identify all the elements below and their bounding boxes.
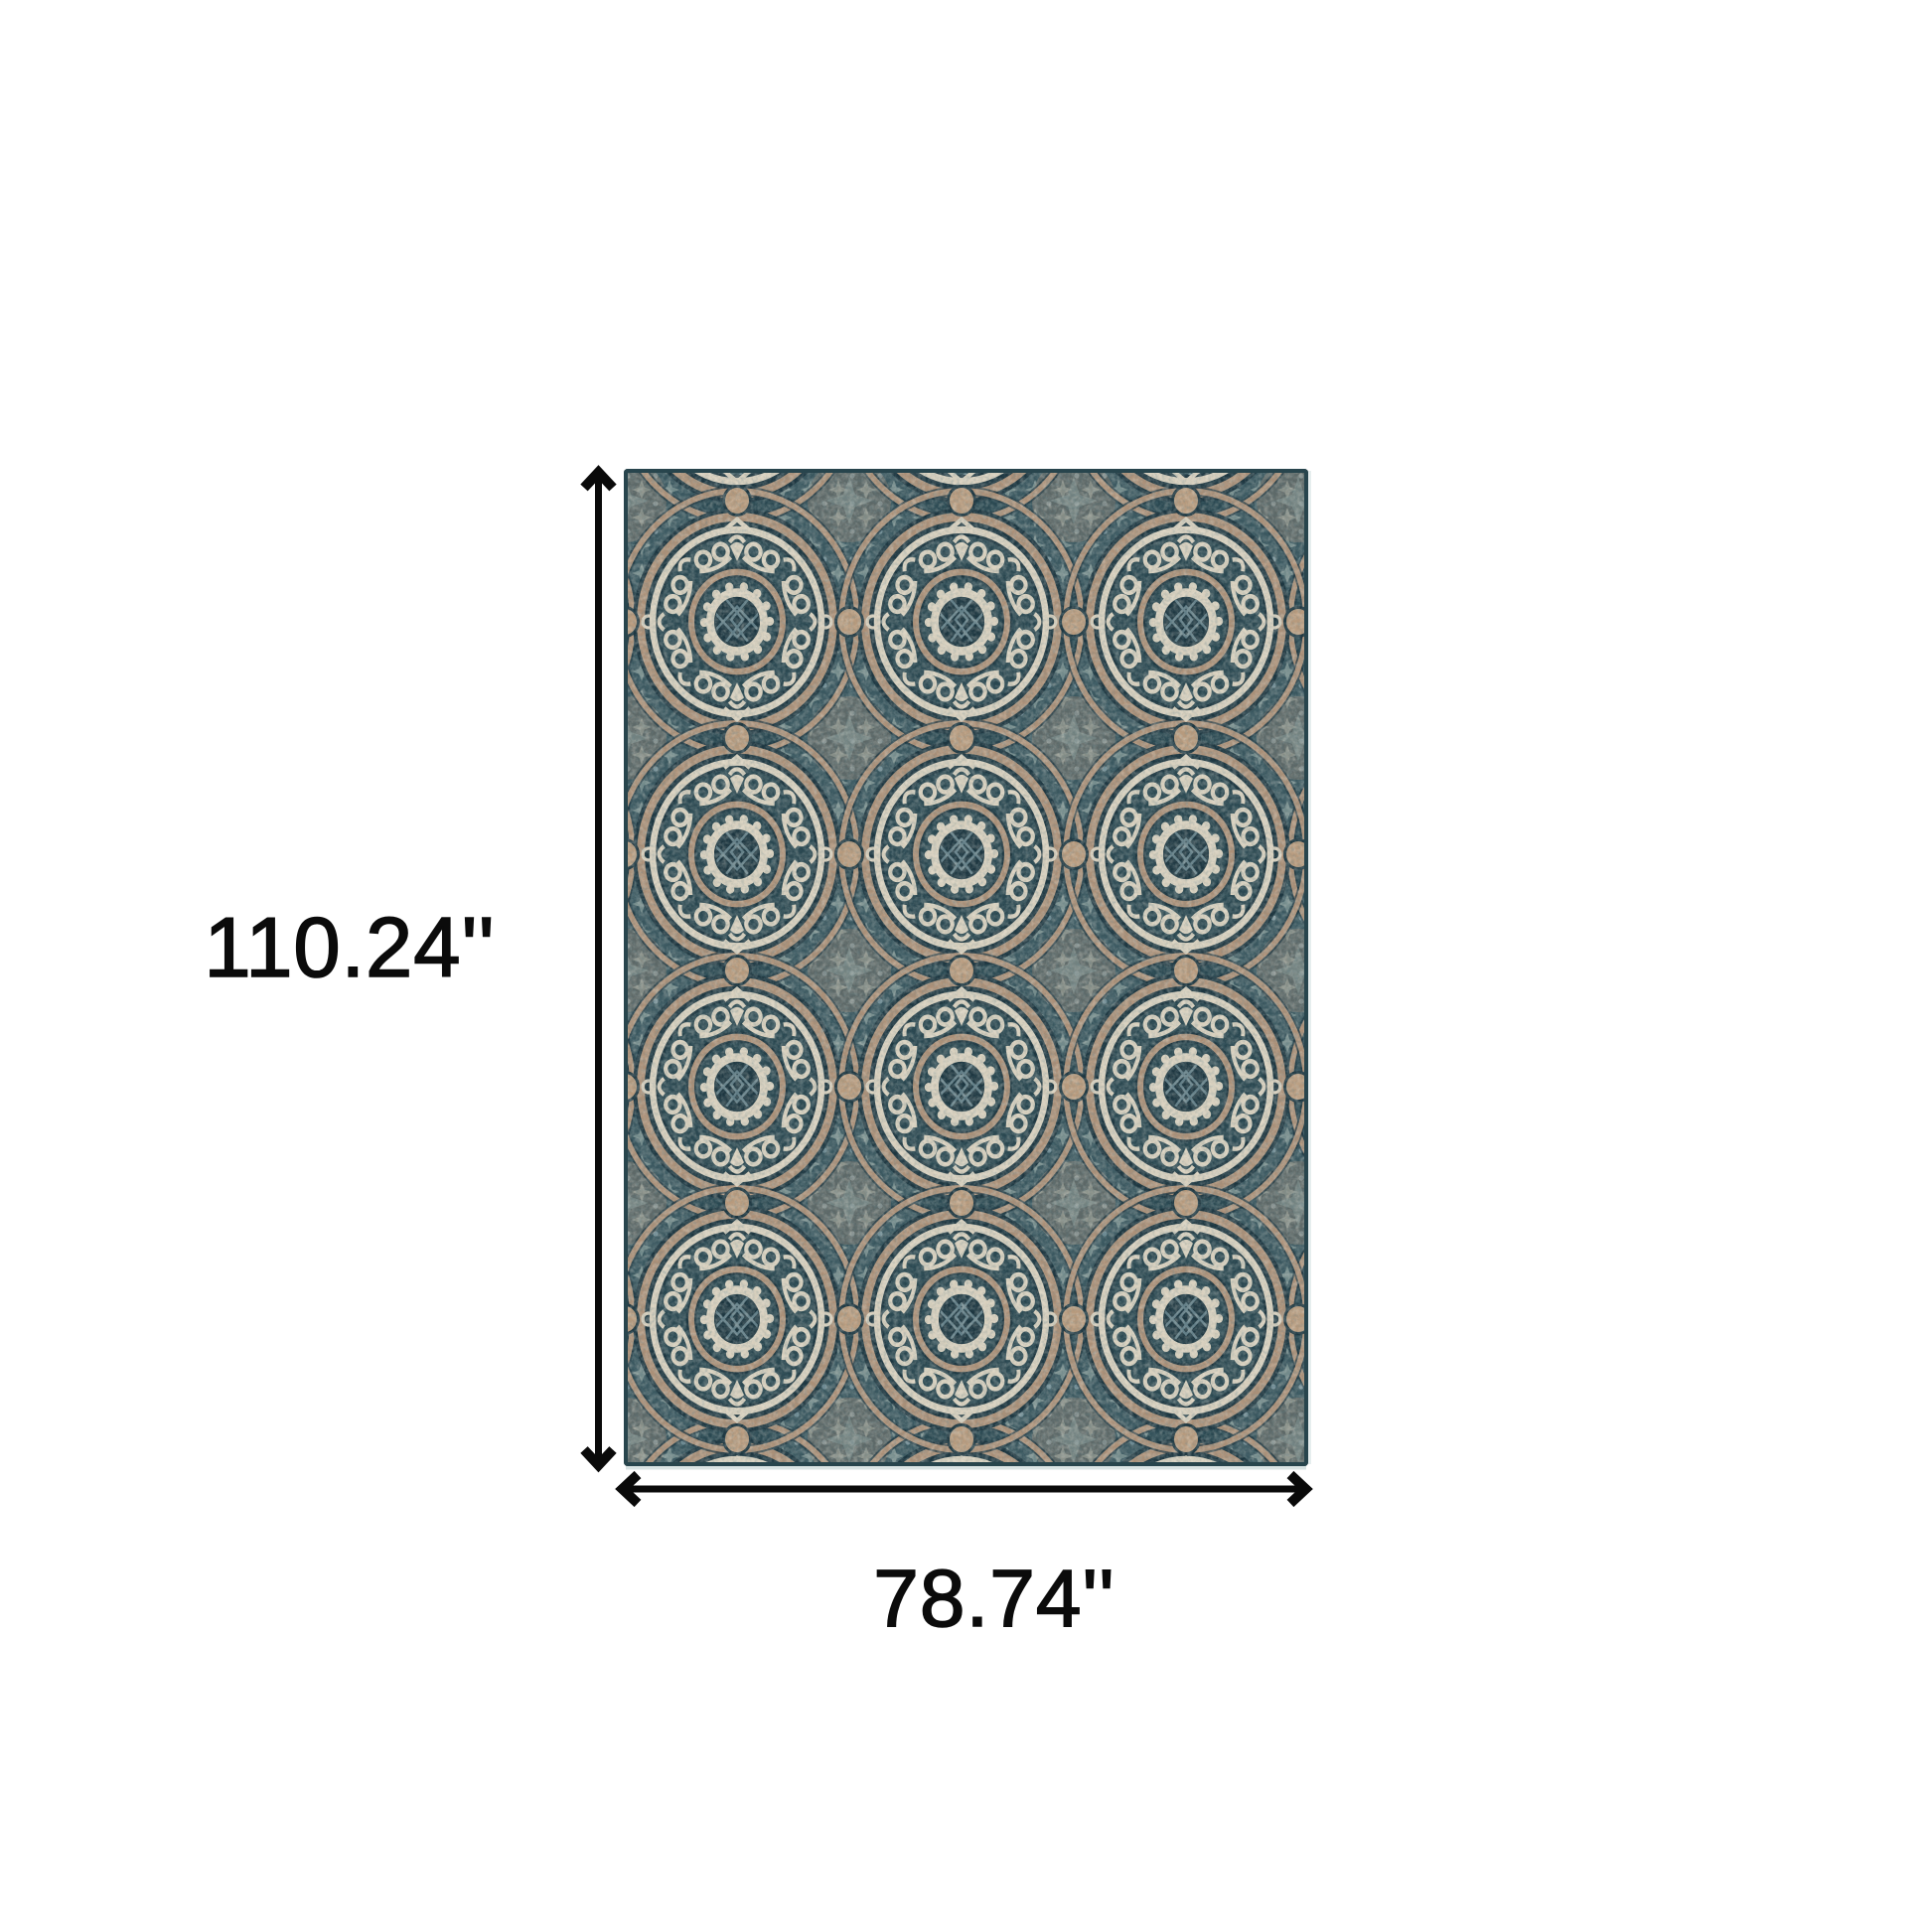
svg-text:78.74'': 78.74'' — [873, 1554, 1115, 1644]
svg-text:110.24'': 110.24'' — [204, 901, 495, 995]
